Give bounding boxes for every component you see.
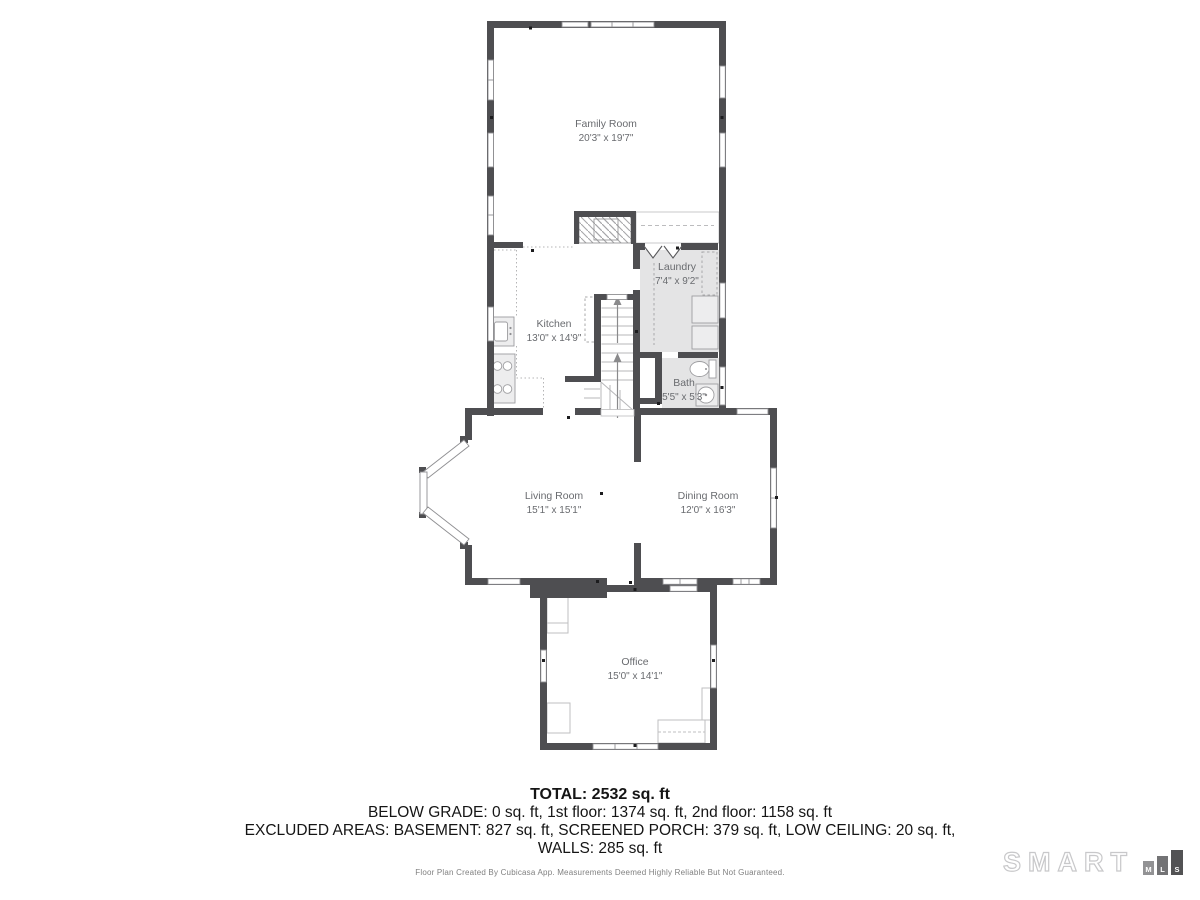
room-dims-laundry: 7'4" x 9'2" xyxy=(655,276,699,287)
smartmls-logo: SMART M L S xyxy=(1003,850,1183,875)
mls-l-block: L xyxy=(1157,856,1168,875)
total-area-text: TOTAL: 2532 sq. ft xyxy=(0,786,1200,804)
floor-plan: Family Room 20'3" x 19'7" Laundry 7'4" x… xyxy=(0,0,1200,762)
room-dims-bath: 5'5" x 5'3" xyxy=(662,392,706,403)
room-label-laundry: Laundry xyxy=(658,261,697,273)
toilet-icon xyxy=(690,360,716,378)
room-dims-living-room: 15'1" x 15'1" xyxy=(527,505,582,516)
stair-hatch xyxy=(579,216,631,243)
floor-plan-page: Family Room 20'3" x 19'7" Laundry 7'4" x… xyxy=(0,0,1200,900)
room-label-kitchen: Kitchen xyxy=(536,318,571,330)
room-label-bath: Bath xyxy=(673,377,695,389)
staircase xyxy=(584,296,634,418)
room-label-dining-room: Dining Room xyxy=(678,490,739,502)
bay-window xyxy=(420,440,469,545)
stair-landing-opening xyxy=(601,410,634,417)
windows xyxy=(488,22,776,749)
room-dims-kitchen: 13'0" x 14'9" xyxy=(527,333,582,344)
below-grade-text: BELOW GRADE: 0 sq. ft, 1st floor: 1374 s… xyxy=(0,804,1200,822)
mls-s-block: S xyxy=(1171,850,1183,875)
washer-icon xyxy=(692,296,718,323)
mls-m-block: M xyxy=(1143,861,1154,875)
room-dims-family-room: 20'3" x 19'7" xyxy=(579,133,634,144)
low-ceiling-area xyxy=(636,212,719,243)
excluded-areas-text: EXCLUDED AREAS: BASEMENT: 827 sq. ft, SC… xyxy=(0,822,1200,840)
room-label-family-room: Family Room xyxy=(575,118,637,130)
room-label-living-room: Living Room xyxy=(525,490,584,502)
smartmls-wordmark: SMART xyxy=(1003,850,1134,875)
dryer-icon xyxy=(692,326,718,349)
kitchen-sink-icon xyxy=(491,317,514,346)
room-label-office: Office xyxy=(621,656,648,668)
room-dims-office: 15'0" x 14'1" xyxy=(608,671,663,682)
room-dims-dining-room: 12'0" x 16'3" xyxy=(681,505,736,516)
